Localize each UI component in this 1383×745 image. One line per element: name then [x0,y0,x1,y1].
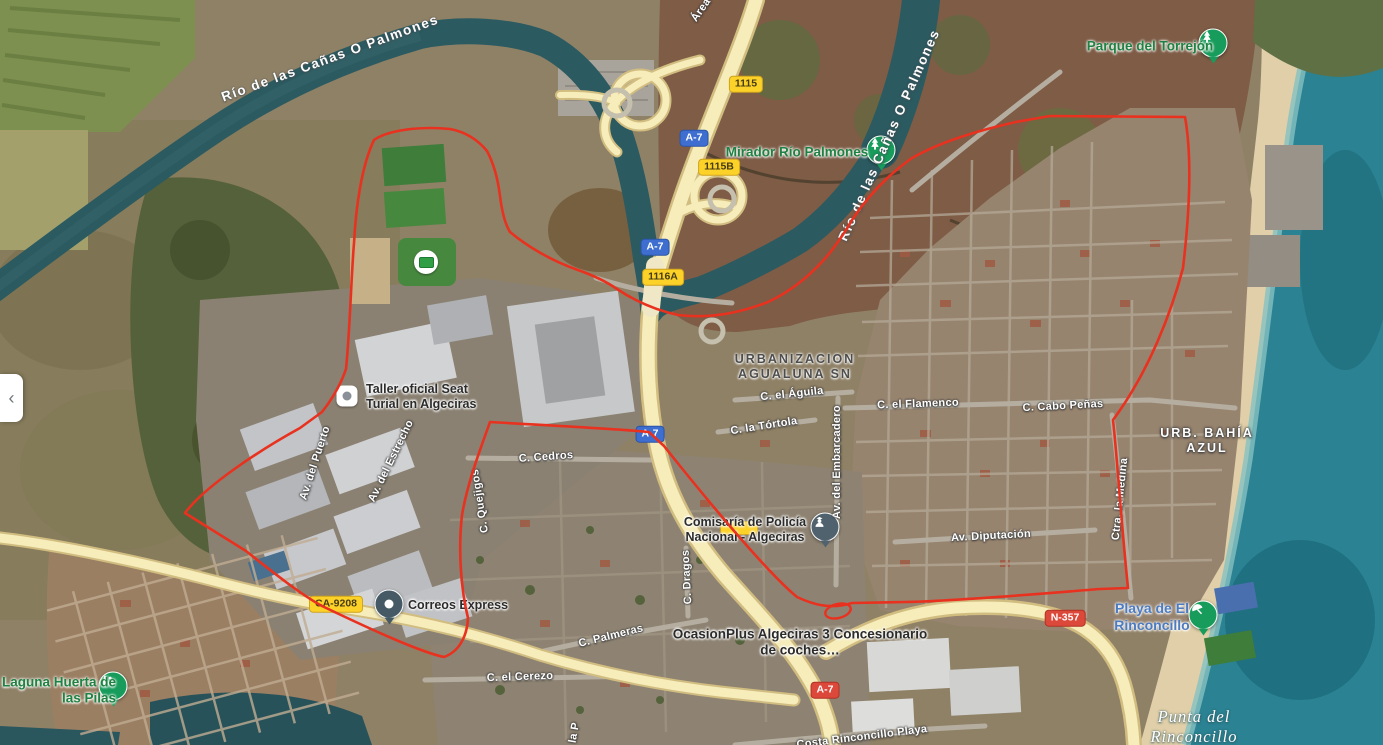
boundary-overlay [0,0,1383,745]
satellite-map[interactable]: 1115 A-7 1115B A-7 1116A A-7 CA-9208 A-7… [0,0,1383,745]
